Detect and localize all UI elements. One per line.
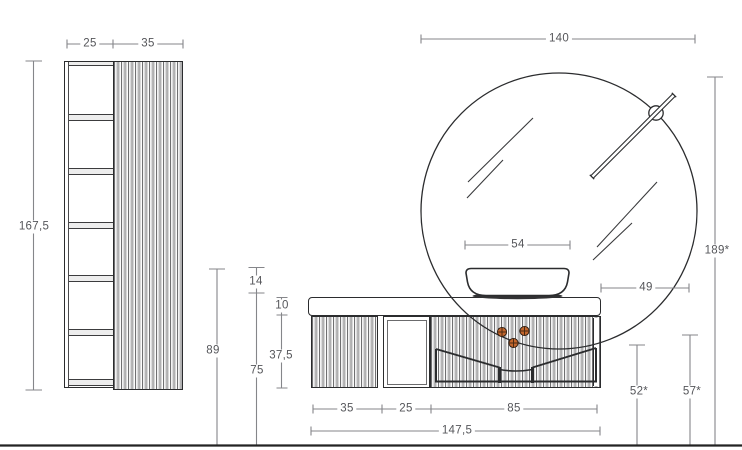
dim-connection-right-height: 57*	[680, 386, 704, 399]
plumbing-marker-icon	[497, 327, 506, 336]
dim-vanity-total-width: 147,5	[439, 425, 475, 438]
dim-cabinet-shelf-width: 25	[80, 38, 99, 51]
dim-mirror-side-overhang: 49	[636, 282, 655, 295]
dim-connection-left-height: 52*	[627, 386, 651, 399]
dim-top-frame-height: 10	[272, 300, 291, 313]
dim-basin-height: 14	[246, 276, 265, 289]
dim-mirror-top-height: 189*	[702, 245, 733, 258]
vessel-basin	[466, 269, 569, 296]
dim-vanity-flute-width: 35	[337, 403, 356, 416]
dim-basin-rim-height: 89	[203, 345, 222, 358]
dim-body-height: 37,5	[266, 350, 296, 363]
dim-vanity-open-width: 25	[396, 403, 415, 416]
technical-drawing: 25 35 167,5 89 14 75 10 37,5 140 54 49 1…	[0, 0, 742, 450]
dim-worktop-height: 75	[247, 365, 266, 378]
plumbing-connection-markers	[497, 326, 529, 347]
dim-cabinet-height: 167,5	[16, 221, 52, 234]
dim-basin-width: 54	[508, 239, 527, 252]
dim-mirror-diameter: 140	[546, 33, 572, 46]
sink-cabinet-interior	[435, 348, 597, 383]
dim-cabinet-door-width: 35	[138, 38, 157, 51]
plumbing-marker-icon	[520, 326, 529, 335]
plumbing-marker-icon	[509, 338, 518, 347]
drawing-top-layer	[0, 0, 742, 450]
dim-vanity-basin-width: 85	[504, 403, 523, 416]
